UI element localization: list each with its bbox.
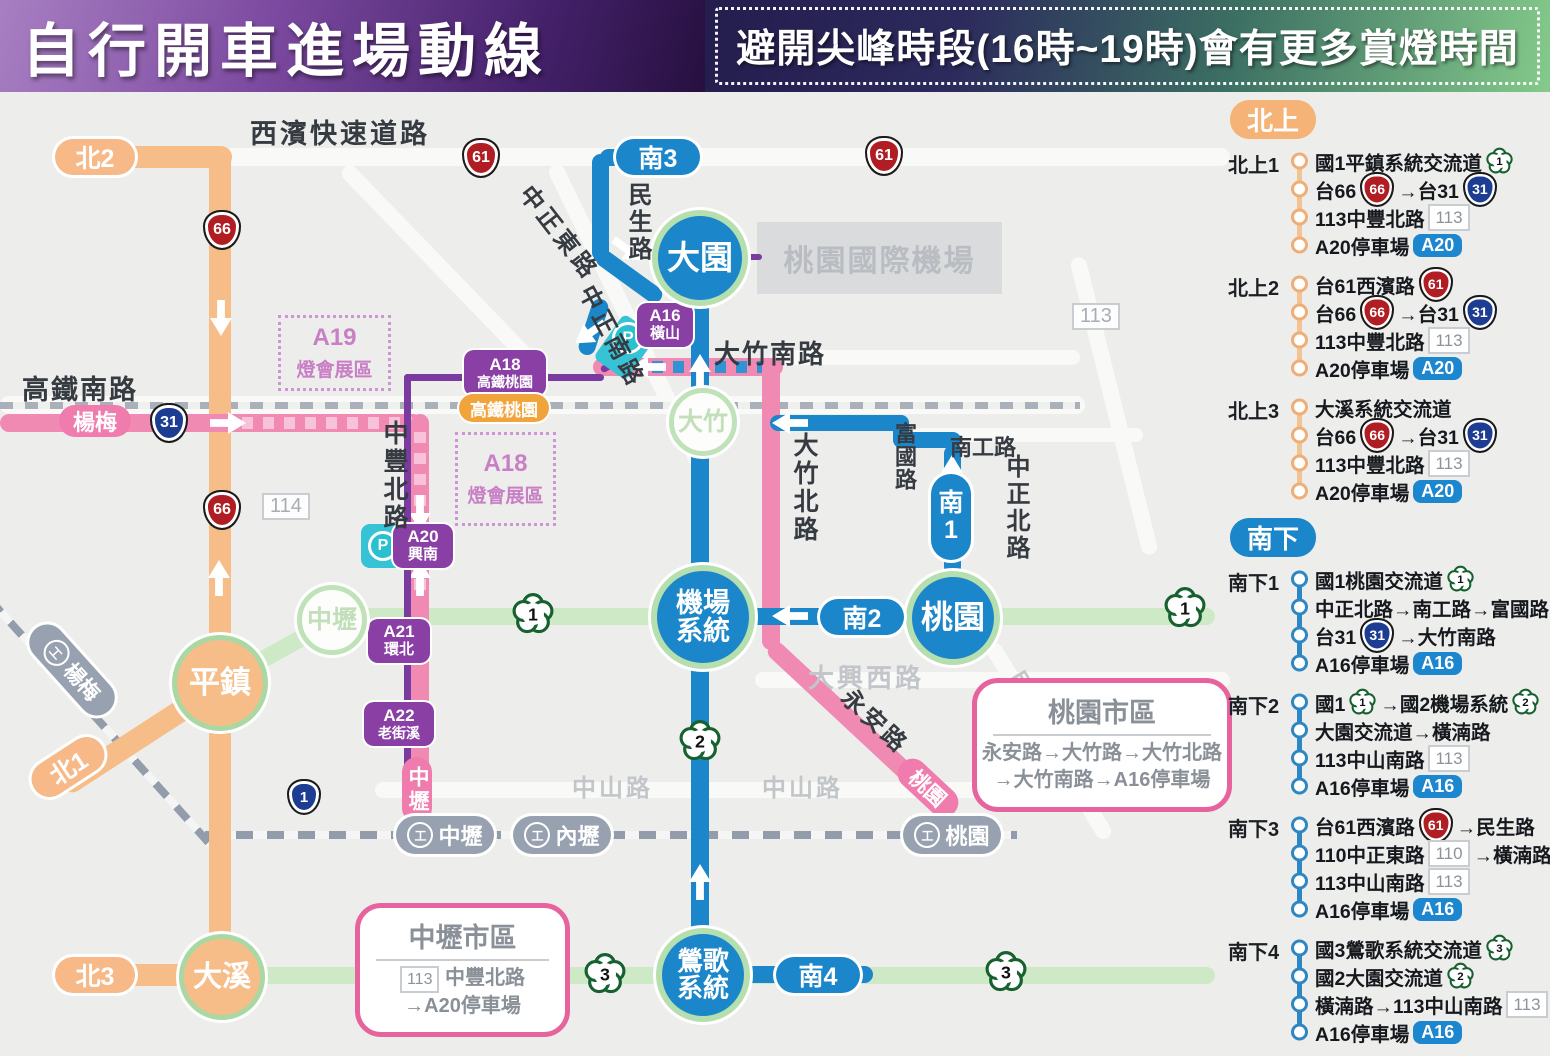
pill-bei2: 北2 (55, 139, 135, 175)
badge-box: 113 (1428, 868, 1469, 895)
route-map: 桃園國際機場 (0, 92, 1232, 1056)
plum-badge-3-west: 3 (584, 952, 626, 1001)
route-step: 國1桃園交流道 1 (1315, 565, 1549, 593)
mrt-a16-name: 橫山 (650, 326, 680, 343)
badge-box: 113 (1428, 745, 1469, 772)
pill-nan1: 南1 (931, 474, 971, 560)
mrt-badge-a16: A16 橫山 (637, 303, 693, 347)
citybox-zhongli-title: 中壢市區 (360, 916, 565, 955)
badge-a: A16 (1413, 898, 1462, 921)
route-step: 台61西濱路 61→民生路 (1315, 811, 1550, 839)
route-step: A16停車場 A16 (1315, 772, 1539, 800)
badge-box: 113 (1428, 450, 1469, 477)
node-pingzhen-label: 平鎮 (189, 667, 251, 700)
tra-station-zhongli: 工 中壢 (396, 816, 494, 854)
badge-navy: 31 (1463, 418, 1497, 453)
tra-rail-horizontal (205, 831, 1017, 839)
route-step: 中正北路→南工路→富國路 (1315, 593, 1549, 621)
plum-blossom-icon: 3 (584, 952, 626, 996)
blue-minsheng (592, 154, 609, 261)
pill-bei1: 北1 (25, 730, 112, 804)
page-title: 自行開車進場動線 (0, 4, 550, 88)
expo-box-a19: A19 燈會展區 (278, 315, 391, 391)
pill-bei3-label: 北3 (76, 957, 115, 993)
node-jichang-line2: 系統 (676, 617, 730, 645)
airport-label: 桃園國際機場 (784, 236, 976, 280)
pill-yangmei-label: 楊梅 (73, 405, 117, 437)
shield-66-south: 66 (203, 490, 241, 530)
route-steps: 大溪系統交流道台66 66→台31 31113中豐北路 113A20停車場 A2… (1290, 393, 1497, 505)
node-taoyuan-label: 桃園 (921, 601, 985, 635)
svg-text:1: 1 (1457, 574, 1464, 586)
svg-text:3: 3 (600, 964, 610, 984)
tra-station-taoyuan: 工 桃園 (903, 816, 1001, 854)
citybox-taoyuan: 桃園市區 永安路→大竹路→大竹北路 →大竹南路→A16停車場 (972, 678, 1232, 812)
route-steps: 台61西濱路 61→民生路110中正東路 110→橫湳路113中山南路 113A… (1290, 811, 1550, 923)
pill-zhongli-label: 中壢 (402, 766, 432, 814)
plum-badge-1-west: 1 (512, 592, 554, 641)
p-letter: P (378, 537, 389, 555)
node-dayuan-label: 大園 (667, 241, 733, 276)
plum-blossom-icon: 3 (1486, 934, 1513, 962)
shield-1-number: 1 (300, 789, 308, 806)
mrt-a18-code: A18 (489, 356, 520, 375)
header: 自行開車進場動線 避開尖峰時段(16時~19時)會有更多賞燈時間 (0, 0, 1550, 92)
label-zhongzheng-bei: 中正北路 (998, 454, 1033, 562)
svg-text:2: 2 (695, 731, 705, 751)
badge-red: 66 (1360, 418, 1394, 453)
plum-blossom-icon: 3 (985, 950, 1027, 994)
route-label: 北上3 (1228, 393, 1290, 424)
shield-31: 31 (150, 403, 188, 443)
header-title-panel: 自行開車進場動線 (0, 0, 705, 92)
label-gaotienan: 高鐵南路 (22, 368, 138, 407)
route-row: 北上2台61西濱路 61台66 66→台31 31113中豐北路 113A20停… (1228, 270, 1550, 382)
route-step: A16停車場 A16 (1315, 895, 1550, 923)
node-dazhu-label: 大竹 (678, 409, 728, 435)
mrt-badge-a18: A18 高鐵桃園 (464, 350, 546, 396)
route-step: 台31 31→大竹南路 (1315, 621, 1549, 649)
roadnum-113: 113 (1072, 303, 1120, 330)
mrt-a22-name: 老街溪 (378, 726, 420, 741)
plum-blossom-icon: 1 (512, 592, 554, 636)
hsr-station-badge: 高鐵桃園 (459, 394, 549, 422)
plum-blossom-icon: 1 (1486, 147, 1513, 175)
badge-a: A16 (1413, 775, 1462, 798)
route-step: A16停車場 A16 (1315, 1018, 1548, 1046)
shield-66-number: 66 (213, 501, 231, 519)
citybox-113-badge: 113 (400, 966, 440, 993)
route-row: 南下1國1桃園交流道 1中正北路→南工路→富國路台31 31→大竹南路A16停車… (1228, 565, 1550, 677)
node-yingge-line1: 鶯歌 (677, 948, 729, 975)
poster-canvas: 自行開車進場動線 避開尖峰時段(16時~19時)會有更多賞燈時間 桃園國際機場 (0, 0, 1550, 1056)
badge-a: A20 (1413, 480, 1462, 503)
pill-nan2-label: 南2 (843, 599, 882, 635)
route-step: 大園交流道→橫湳路 (1315, 716, 1539, 744)
route-step: 113中豐北路 113 (1315, 449, 1497, 477)
route-label: 南下4 (1228, 934, 1290, 965)
route-steps: 國3鶯歌系統交流道 3國2大園交流道 2橫湳路→113中山南路 113A16停車… (1290, 934, 1548, 1046)
badge-box: 113 (1506, 991, 1547, 1018)
tra-logo-icon: 工 (914, 822, 940, 848)
label-zhongshan-b: 中山路 (762, 768, 843, 803)
pill-bei2-label: 北2 (76, 139, 115, 175)
mrt-a21-code: A21 (383, 623, 414, 642)
route-step: 113中山南路 113 (1315, 867, 1550, 895)
label-zhongfengbei: 中豐北路 (376, 420, 412, 532)
label-xibin: 西濱快速道路 (250, 112, 430, 151)
route-list-sidebar: 北上北上1國1平鎮系統交流道 1台66 66→台31 31113中豐北路 113… (1228, 98, 1550, 1056)
shield-66-north: 66 (203, 210, 241, 250)
citybox-zhongli-line2: →A20停車場 (360, 993, 565, 1020)
svg-text:2: 2 (1457, 971, 1463, 983)
route-row: 北上3大溪系統交流道台66 66→台31 31113中豐北路 113A20停車場… (1228, 393, 1550, 505)
badge-red: 66 (1360, 172, 1394, 207)
plum-blossom-icon: 1 (1349, 688, 1376, 716)
pill-nan3-label: 南3 (639, 139, 678, 175)
badge-a: A20 (1413, 357, 1462, 380)
route-row: 南下2國1 1→國2機場系統 2大園交流道→橫湳路113中山南路 113A16停… (1228, 688, 1550, 800)
badge-box: 113 (1428, 204, 1469, 231)
shield-31-number: 31 (160, 414, 178, 432)
pill-nan1-label: 南1 (937, 490, 965, 545)
label-dazhunan: 大竹南路 (714, 334, 826, 371)
route-steps: 國1桃園交流道 1中正北路→南工路→富國路台31 31→大竹南路A16停車場 A… (1290, 565, 1549, 677)
mrt-a21-name: 環北 (384, 642, 414, 659)
citybox-divider (993, 734, 1211, 736)
svg-text:3: 3 (1496, 943, 1502, 955)
route-step: 橫湳路→113中山南路 113 (1315, 990, 1548, 1018)
svg-text:2: 2 (1523, 697, 1529, 709)
shield-1: 1 (287, 779, 321, 815)
badge-red: 61 (1419, 808, 1453, 843)
route-step: 台66 66→台31 31 (1315, 298, 1497, 326)
badge-navy: 31 (1463, 295, 1497, 330)
route-label: 北上2 (1228, 270, 1290, 301)
route-label: 南下3 (1228, 811, 1290, 842)
node-zhongli-label: 中壢 (307, 607, 357, 633)
route-step: 大溪系統交流道 (1315, 393, 1497, 421)
route-step: 國2大園交流道 2 (1315, 962, 1548, 990)
route-row: 南下4國3鶯歌系統交流道 3國2大園交流道 2橫湳路→113中山南路 113A1… (1228, 934, 1550, 1046)
node-daxi-label: 大溪 (193, 962, 251, 992)
shield-61-number: 61 (875, 147, 893, 165)
label-dazhubei: 大竹北路 (786, 432, 822, 544)
pill-zhongli-pink: 中壢 (402, 757, 432, 823)
citybox-taoyuan-line2: →大竹南路→A16停車場 (977, 767, 1227, 794)
route-steps: 國1平鎮系統交流道 1台66 66→台31 31113中豐北路 113A20停車… (1290, 147, 1513, 259)
label-zhongshan-a: 中山路 (572, 768, 653, 803)
route-step: 台66 66→台31 31 (1315, 421, 1497, 449)
node-jichang: 機場 系統 (651, 565, 755, 669)
hsr-station-name: 高鐵桃園 (470, 396, 538, 421)
route-step: A20停車場 A20 (1315, 231, 1513, 259)
plum-blossom-icon: 1 (1447, 565, 1474, 593)
pill-yangmei-pink: 楊梅 (59, 405, 131, 437)
tra-station-neili: 工 內壢 (513, 816, 611, 854)
route-step: 110中正東路 110→橫湳路 (1315, 839, 1550, 867)
route-label: 北上1 (1228, 147, 1290, 178)
route-step: 國3鶯歌系統交流道 3 (1315, 934, 1548, 962)
badge-a: A16 (1413, 1021, 1462, 1044)
label-fuguo: 富國路 (888, 422, 920, 491)
pill-nan2: 南2 (820, 599, 904, 635)
mrt-a20-code: A20 (407, 528, 438, 547)
svg-text:1: 1 (1360, 697, 1367, 709)
mrt-a18-name: 高鐵桃園 (477, 375, 533, 390)
badge-red: 66 (1360, 295, 1394, 330)
citybox-zhongli: 中壢市區 113 中豐北路 →A20停車場 (355, 903, 570, 1037)
route-step: A20停車場 A20 (1315, 354, 1497, 382)
badge-a: A20 (1413, 234, 1462, 257)
pill-taoyuan-label: 桃園 (902, 763, 953, 814)
badge-red: 61 (1419, 267, 1453, 302)
route-step: 113中豐北路 113 (1315, 203, 1513, 231)
plum-badge-3-east: 3 (985, 950, 1027, 999)
airport-box: 桃園國際機場 (757, 222, 1002, 294)
node-yingge-line2: 系統 (677, 975, 729, 1002)
expo-a19-name: 燈會展區 (296, 355, 372, 382)
route-step: 台66 66→台31 31 (1315, 175, 1513, 203)
route-step: 台61西濱路 61 (1315, 270, 1497, 298)
svg-text:1: 1 (1496, 156, 1503, 168)
route-step: A16停車場 A16 (1315, 649, 1549, 677)
node-jichang-line1: 機場 (676, 589, 730, 617)
shield-66-number: 66 (213, 221, 231, 239)
mrt-badge-a21: A21 環北 (368, 619, 430, 663)
expo-a18-code: A18 (483, 450, 527, 478)
notice-text: 避開尖峰時段(16時~19時)會有更多賞燈時間 (736, 18, 1519, 74)
route-step: 113中山南路 113 (1315, 744, 1539, 772)
badge-box: 110 (1428, 840, 1469, 867)
node-daxi: 大溪 (179, 934, 265, 1020)
route-step: A20停車場 A20 (1315, 477, 1497, 505)
route-step: 國1平鎮系統交流道 1 (1315, 147, 1513, 175)
roadnum-114: 114 (262, 493, 310, 520)
route-row: 北上1國1平鎮系統交流道 1台66 66→台31 31113中豐北路 113A2… (1228, 147, 1550, 259)
svg-text:3: 3 (1001, 962, 1011, 982)
notice-frame: 避開尖峰時段(16時~19時)會有更多賞燈時間 (715, 7, 1540, 85)
plum-blossom-icon: 1 (1164, 586, 1206, 630)
plum-blossom-icon: 2 (1447, 962, 1474, 990)
tra-yangmei-label: 楊梅 (57, 656, 107, 707)
tra-logo-icon: 工 (407, 822, 433, 848)
label-minsheng: 民生路 (620, 182, 655, 263)
citybox-zhongli-line1: 113 中豐北路 (360, 965, 565, 993)
plum-blossom-icon: 2 (1512, 688, 1539, 716)
tra-neili-label: 內壢 (555, 819, 599, 851)
route-step: 113中豐北路 113 (1315, 326, 1497, 354)
sidebar-section-pill: 南下 (1230, 518, 1316, 557)
tra-taoyuan-label: 桃園 (945, 819, 989, 851)
pill-nan4: 南4 (776, 957, 860, 993)
node-zhongli: 中壢 (297, 585, 367, 655)
shield-61-west: 61 (462, 138, 500, 178)
node-taoyuan: 桃園 (906, 571, 1000, 665)
badge-box: 113 (1428, 327, 1469, 354)
tra-station-yangmei: 工 楊梅 (22, 617, 122, 723)
citybox-taoyuan-line1: 永安路→大竹路→大竹北路 (977, 740, 1227, 767)
pill-nan3: 南3 (616, 139, 700, 175)
sidebar-section-pill: 北上 (1230, 100, 1316, 139)
citybox-zhongli-road: 中豐北路 (445, 967, 525, 989)
node-pingzhen: 平鎮 (172, 635, 268, 731)
svg-text:1: 1 (1180, 598, 1190, 618)
route-steps: 台61西濱路 61台66 66→台31 31113中豐北路 113A20停車場 … (1290, 270, 1497, 382)
badge-a: A16 (1413, 652, 1462, 675)
citybox-taoyuan-title: 桃園市區 (977, 691, 1227, 730)
route-steps: 國1 1→國2機場系統 2大園交流道→橫湳路113中山南路 113A16停車場 … (1290, 688, 1539, 800)
route-label: 南下1 (1228, 565, 1290, 596)
node-dayuan: 大園 (652, 210, 748, 306)
mrt-a22-code: A22 (383, 707, 414, 726)
mrt-a16-code: A16 (649, 307, 680, 326)
pill-nan4-label: 南4 (799, 957, 838, 993)
node-yingge: 鶯歌 系統 (656, 928, 750, 1022)
shield-61-east: 61 (865, 136, 903, 176)
mrt-badge-a22: A22 老街溪 (364, 702, 434, 746)
plum-blossom-icon: 2 (679, 719, 721, 763)
badge-navy: 31 (1463, 172, 1497, 207)
expo-box-a18: A18 燈會展區 (455, 432, 556, 526)
route-row: 南下3台61西濱路 61→民生路110中正東路 110→橫湳路113中山南路 1… (1228, 811, 1550, 923)
pink-route-dazhubei (762, 358, 780, 650)
header-notice-panel: 避開尖峰時段(16時~19時)會有更多賞燈時間 (705, 0, 1550, 92)
node-dazhu: 大竹 (669, 388, 737, 456)
plum-badge-1-east: 1 (1164, 586, 1206, 635)
svg-text:1: 1 (528, 604, 538, 624)
route-label: 南下2 (1228, 688, 1290, 719)
plum-badge-2: 2 (679, 719, 721, 768)
pill-bei3: 北3 (55, 957, 135, 993)
tra-zhongli-label: 中壢 (438, 819, 482, 851)
expo-a19-code: A19 (312, 324, 356, 352)
expo-a18-name: 燈會展區 (467, 481, 543, 508)
badge-navy: 31 (1360, 618, 1394, 653)
tra-logo-icon: 工 (524, 822, 550, 848)
shield-61-number: 61 (472, 149, 490, 167)
route-step: 國1 1→國2機場系統 2 (1315, 688, 1539, 716)
mrt-a20-name: 興南 (408, 547, 438, 564)
citybox-divider (376, 959, 549, 961)
